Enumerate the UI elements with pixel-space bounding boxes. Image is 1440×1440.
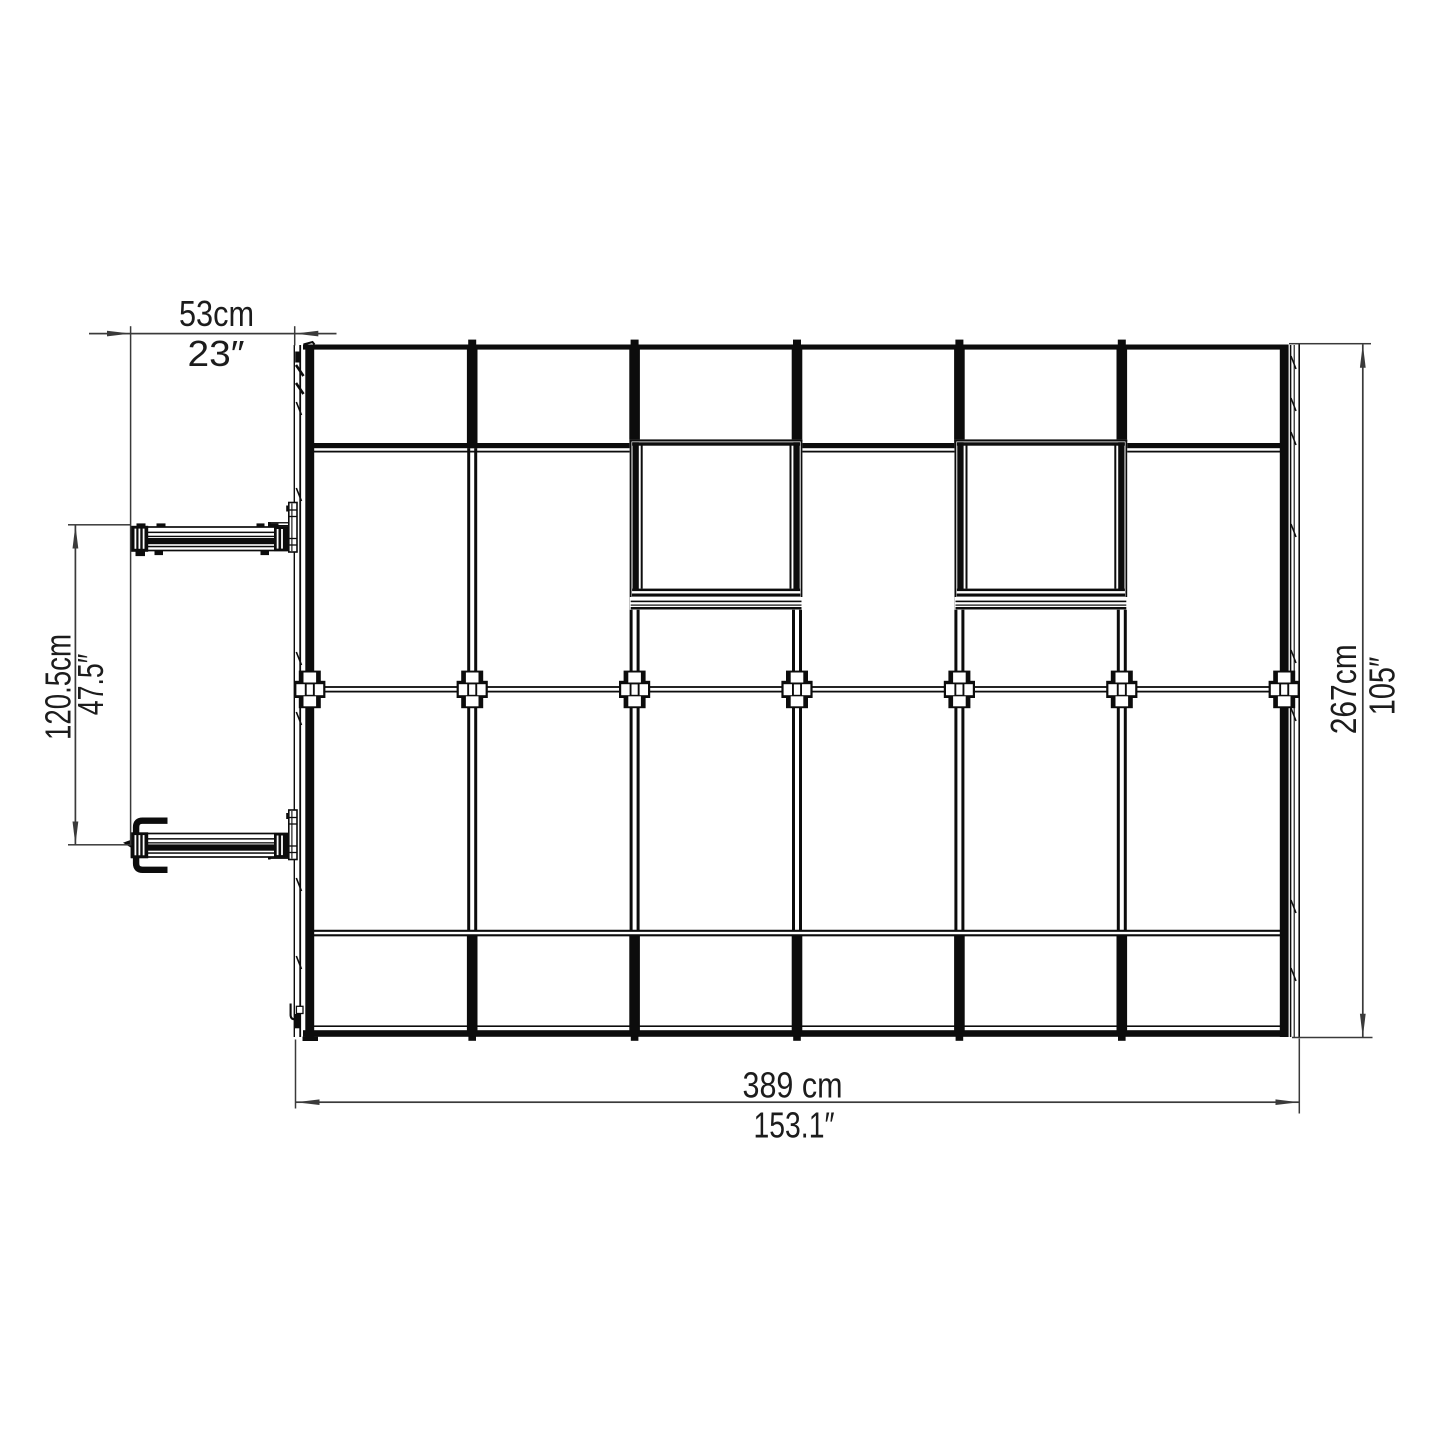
svg-text:153.1″: 153.1″ (754, 1104, 835, 1145)
svg-text:389 cm: 389 cm (743, 1064, 843, 1105)
svg-text:105″: 105″ (1362, 657, 1403, 716)
svg-text:47.5″: 47.5″ (70, 654, 111, 716)
svg-text:267cm: 267cm (1323, 644, 1364, 734)
svg-text:53cm: 53cm (179, 293, 254, 334)
svg-text:23″: 23″ (188, 333, 245, 374)
